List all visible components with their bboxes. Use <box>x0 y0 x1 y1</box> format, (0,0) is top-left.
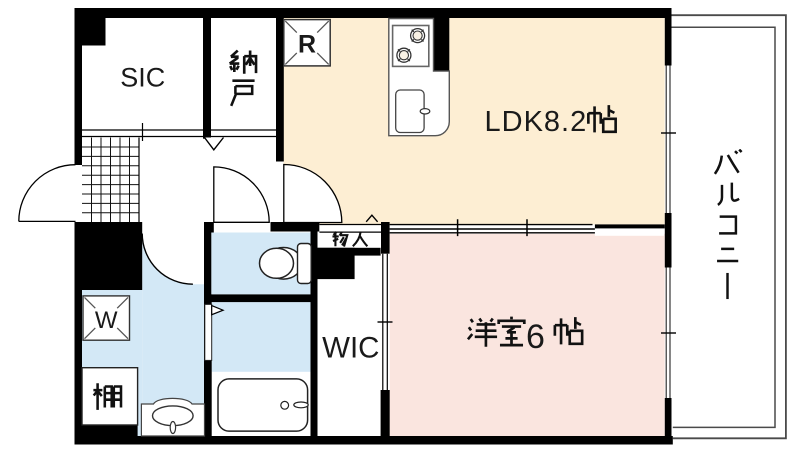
svg-text:LDK8.2: LDK8.2 <box>485 106 588 138</box>
svg-text:6: 6 <box>526 318 545 356</box>
svg-text:WIC: WIC <box>322 332 379 365</box>
svg-text:SIC: SIC <box>120 63 165 93</box>
svg-text:W: W <box>95 307 118 334</box>
svg-text:R: R <box>298 30 316 58</box>
